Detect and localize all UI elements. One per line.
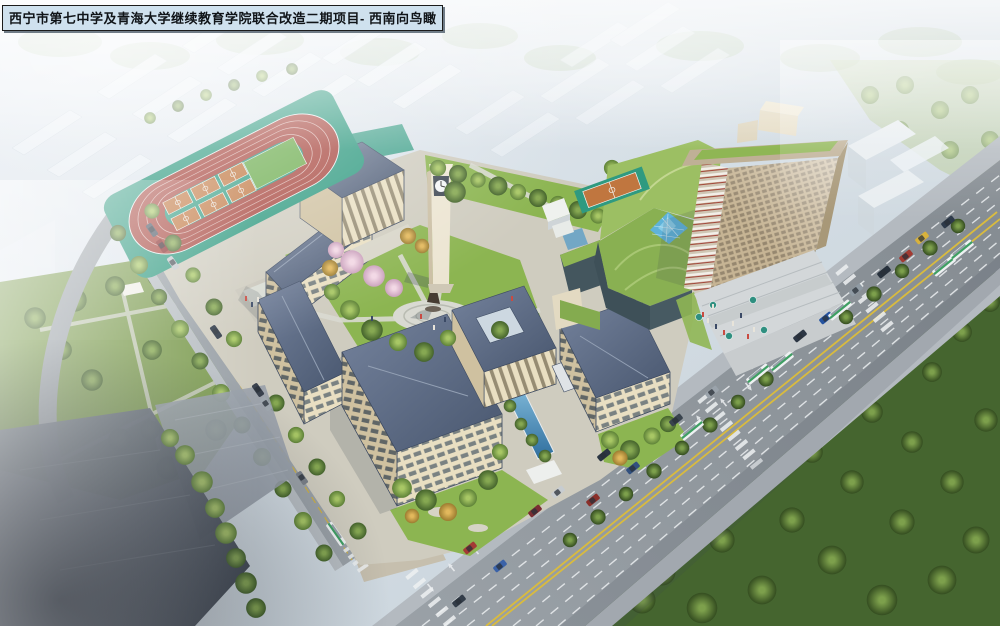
- aerial-rendering-canvas: [0, 0, 1000, 626]
- rendering-viewport: 西宁市第七中学及青海大学继续教育学院联合改造二期项目- 西南向鸟瞰: [0, 0, 1000, 626]
- project-title-label: 西宁市第七中学及青海大学继续教育学院联合改造二期项目- 西南向鸟瞰: [2, 5, 443, 31]
